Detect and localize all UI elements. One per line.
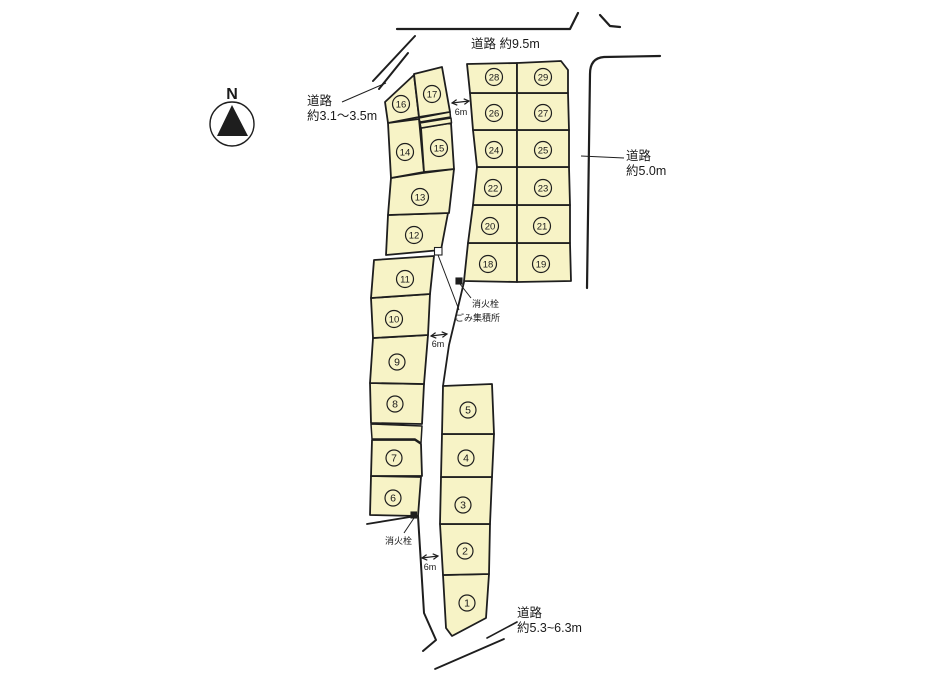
plot-23-number: 23 (538, 183, 549, 194)
plot-13-number: 13 (415, 192, 426, 203)
fire-hydrant-lower-label: 消火栓 (385, 535, 412, 546)
plot-4-number: 4 (463, 452, 469, 464)
road-top-edge (397, 13, 578, 29)
leader-road-east (581, 156, 624, 158)
plot-3 (440, 477, 492, 524)
plot-20-number: 20 (485, 221, 496, 232)
road-east-label: 約5.0m (626, 163, 666, 178)
plot-18-number: 18 (483, 259, 494, 270)
north-letter: N (226, 86, 238, 103)
leader-road-west (342, 83, 386, 102)
plot-28-number: 28 (489, 72, 500, 83)
plot-2-number: 2 (462, 545, 468, 557)
arrow-6m-label: 6m (424, 562, 437, 572)
fire-hydrant-upper-marker (456, 278, 462, 284)
plot-14-number: 14 (400, 147, 411, 158)
road-east-label: 道路 (626, 148, 652, 163)
plot-16-number: 16 (396, 99, 407, 110)
plot-8-number: 8 (392, 398, 398, 410)
arrow-6m-label: 6m (432, 339, 445, 349)
width-middle: 6m (431, 332, 447, 349)
width-bottom: 6m (422, 554, 438, 572)
plot-25-number: 25 (538, 145, 549, 156)
road-south-label: 道路 (517, 605, 543, 620)
plot-22-number: 22 (488, 183, 499, 194)
north-triangle-icon (217, 105, 248, 136)
plot-3-number: 3 (460, 499, 466, 511)
plot-11-number: 11 (400, 274, 410, 285)
plot-10-number: 10 (389, 314, 400, 325)
plot-24-number: 24 (489, 145, 500, 156)
fire-hydrant-upper-label: 消火栓 (472, 298, 499, 309)
road-main-left-lower (418, 516, 436, 651)
road-top-corner (600, 15, 620, 27)
plot-5-number: 5 (465, 404, 471, 416)
plot-10 (371, 294, 430, 338)
leader-hydrant-lo (404, 518, 414, 533)
garbage-station-label: ごみ集積所 (455, 312, 500, 323)
plot-9-number: 9 (394, 356, 400, 368)
north-compass: N (210, 86, 254, 146)
road-south-label: 約5.3~6.3m (517, 620, 582, 635)
road-west-label: 道路 (307, 93, 333, 108)
width-top: 6m (452, 99, 469, 117)
plot-27-number: 27 (538, 108, 549, 119)
plot-7-number: 7 (391, 452, 397, 464)
site-map: 6m6m6m 123456789101112131415161718192021… (0, 0, 947, 681)
plot-17-number: 17 (427, 89, 438, 100)
road-west-label: 約3.1〜3.5m (307, 108, 377, 123)
fire-hydrant-lower-marker (411, 512, 417, 518)
plot-15-number: 15 (434, 143, 445, 154)
plot-6-number: 6 (390, 492, 396, 504)
plot-1-number: 1 (464, 597, 470, 609)
block-sliver-line (367, 516, 416, 524)
road-west-diag-outer (373, 36, 415, 81)
site-plan-page: 6m6m6m 123456789101112131415161718192021… (0, 0, 947, 681)
plot-29-number: 29 (538, 72, 549, 83)
plot-12-number: 12 (409, 230, 420, 241)
garbage-station-marker (435, 248, 443, 256)
plot-19-number: 19 (536, 259, 547, 270)
road-south-edge-b (435, 639, 504, 669)
road-south-edge-a (487, 622, 517, 638)
arrow-6m-label: 6m (455, 107, 468, 117)
compass-layer: N (210, 86, 254, 146)
road-north-label: 道路 約9.5m (471, 36, 540, 51)
plot-26-number: 26 (489, 108, 500, 119)
plot-21-number: 21 (537, 221, 548, 232)
